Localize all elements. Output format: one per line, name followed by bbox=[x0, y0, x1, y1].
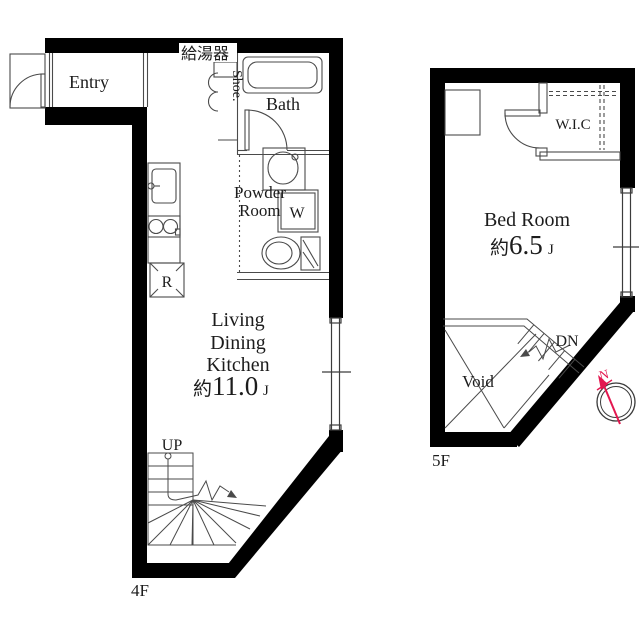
f4-wall-entry-bottom bbox=[45, 107, 147, 125]
f4-wall-right-upper bbox=[329, 53, 343, 318]
up-label: UP bbox=[162, 437, 183, 454]
ldk-area-unit: J bbox=[263, 383, 269, 399]
f4-walls bbox=[45, 38, 343, 578]
bath-door-leaf bbox=[245, 110, 249, 150]
wic-left-wall bbox=[539, 83, 547, 113]
wic-door-leaf bbox=[505, 110, 540, 116]
powder-room-label-line2: Room bbox=[239, 201, 281, 220]
dn-arrow-head bbox=[520, 349, 530, 357]
water-heater-label: 給湯器 bbox=[181, 45, 229, 63]
stove-burner-left bbox=[149, 220, 163, 234]
washer-label: W bbox=[289, 205, 305, 222]
f4-staircase bbox=[148, 453, 266, 545]
floorplan-page: Entry 給湯器 Shoe. Bath Powder Room W R Liv… bbox=[0, 0, 639, 640]
kitchen-counter bbox=[148, 163, 180, 263]
wic-label: W.I.C bbox=[555, 117, 590, 133]
ldk-label-line2: Dining bbox=[210, 332, 266, 354]
f4-wall-diagonal bbox=[217, 436, 343, 578]
f5-corner-box bbox=[445, 90, 480, 135]
floorplan-canvas: Entry 給湯器 Shoe. Bath Powder Room W R Liv… bbox=[0, 0, 639, 640]
bedroom-label: Bed Room bbox=[484, 209, 571, 231]
f4-shoe-closet bbox=[181, 53, 238, 155]
f5-wall-top bbox=[430, 68, 635, 83]
shoe-bifold-door bbox=[209, 73, 219, 111]
floor-5f-plan: W.I.C Bed Room 約 6.5 J Void DN 5F bbox=[430, 68, 639, 470]
entry-label: Entry bbox=[69, 72, 109, 92]
entry-door-leaf bbox=[41, 74, 45, 107]
bedroom-area-label: 約 6.5 J bbox=[490, 230, 554, 260]
ldk-area-prefix: 約 bbox=[193, 378, 212, 400]
wic-bottom-wall bbox=[540, 152, 620, 160]
f5-wall-bottom bbox=[430, 432, 517, 447]
f4-wall-bottom bbox=[132, 563, 235, 578]
f5-wall-right-upper bbox=[620, 68, 635, 188]
f4-window bbox=[322, 318, 351, 430]
bath-door-arc bbox=[247, 110, 287, 150]
vanity-sink bbox=[268, 152, 298, 184]
bedroom-area-prefix: 約 bbox=[490, 237, 509, 259]
stair-winder-treads bbox=[148, 500, 266, 545]
floor-5f-label: 5F bbox=[432, 451, 450, 470]
wic-door-arc bbox=[505, 113, 540, 148]
compass-icon: N bbox=[597, 366, 635, 424]
toilet-bowl-inner bbox=[266, 242, 292, 264]
powder-room-label-line1: Powder bbox=[234, 183, 286, 202]
ldk-area-label: 約 11.0 J bbox=[193, 371, 269, 401]
f5-window bbox=[613, 188, 639, 297]
bedroom-area-value: 6.5 bbox=[509, 230, 543, 260]
void-label: Void bbox=[462, 372, 494, 391]
ldk-area-value: 11.0 bbox=[212, 371, 258, 401]
f4-wall-left bbox=[132, 107, 147, 578]
bath-label: Bath bbox=[266, 94, 300, 114]
fridge-label: R bbox=[162, 274, 173, 291]
f5-wall-left bbox=[430, 68, 445, 447]
bathtub-inner bbox=[248, 62, 317, 88]
ldk-label-line1: Living bbox=[211, 309, 264, 331]
entry-landing bbox=[10, 54, 45, 108]
dn-label: DN bbox=[555, 333, 579, 350]
bedroom-area-unit: J bbox=[548, 242, 554, 258]
f5-wall-diagonal bbox=[507, 300, 634, 447]
floor-4f-label: 4F bbox=[131, 581, 149, 600]
kitchen-faucet bbox=[148, 183, 154, 189]
floor-4f-plan: Entry 給湯器 Shoe. Bath Powder Room W R Liv… bbox=[10, 38, 351, 600]
entry-door-arc bbox=[10, 74, 43, 107]
shoe-label: Shoe. bbox=[229, 70, 244, 102]
